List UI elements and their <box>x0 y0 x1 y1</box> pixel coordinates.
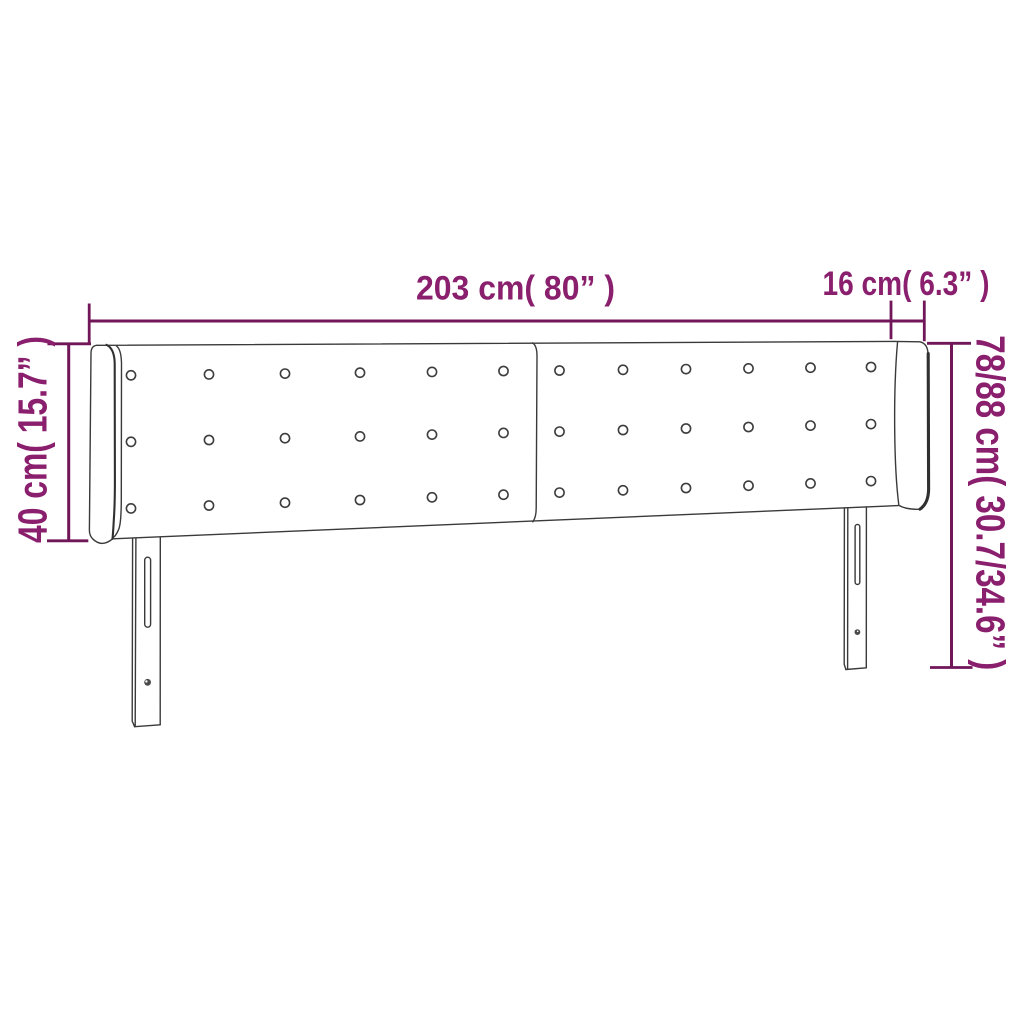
svg-text:78/88 cm( 30.7/34.6” ): 78/88 cm( 30.7/34.6” ) <box>967 335 1013 670</box>
svg-text:203 cm( 80” ): 203 cm( 80” ) <box>416 270 615 308</box>
svg-text:40 cm( 15.7” ): 40 cm( 15.7” ) <box>9 336 55 543</box>
svg-text:16 cm( 6.3” ): 16 cm( 6.3” ) <box>823 265 990 303</box>
